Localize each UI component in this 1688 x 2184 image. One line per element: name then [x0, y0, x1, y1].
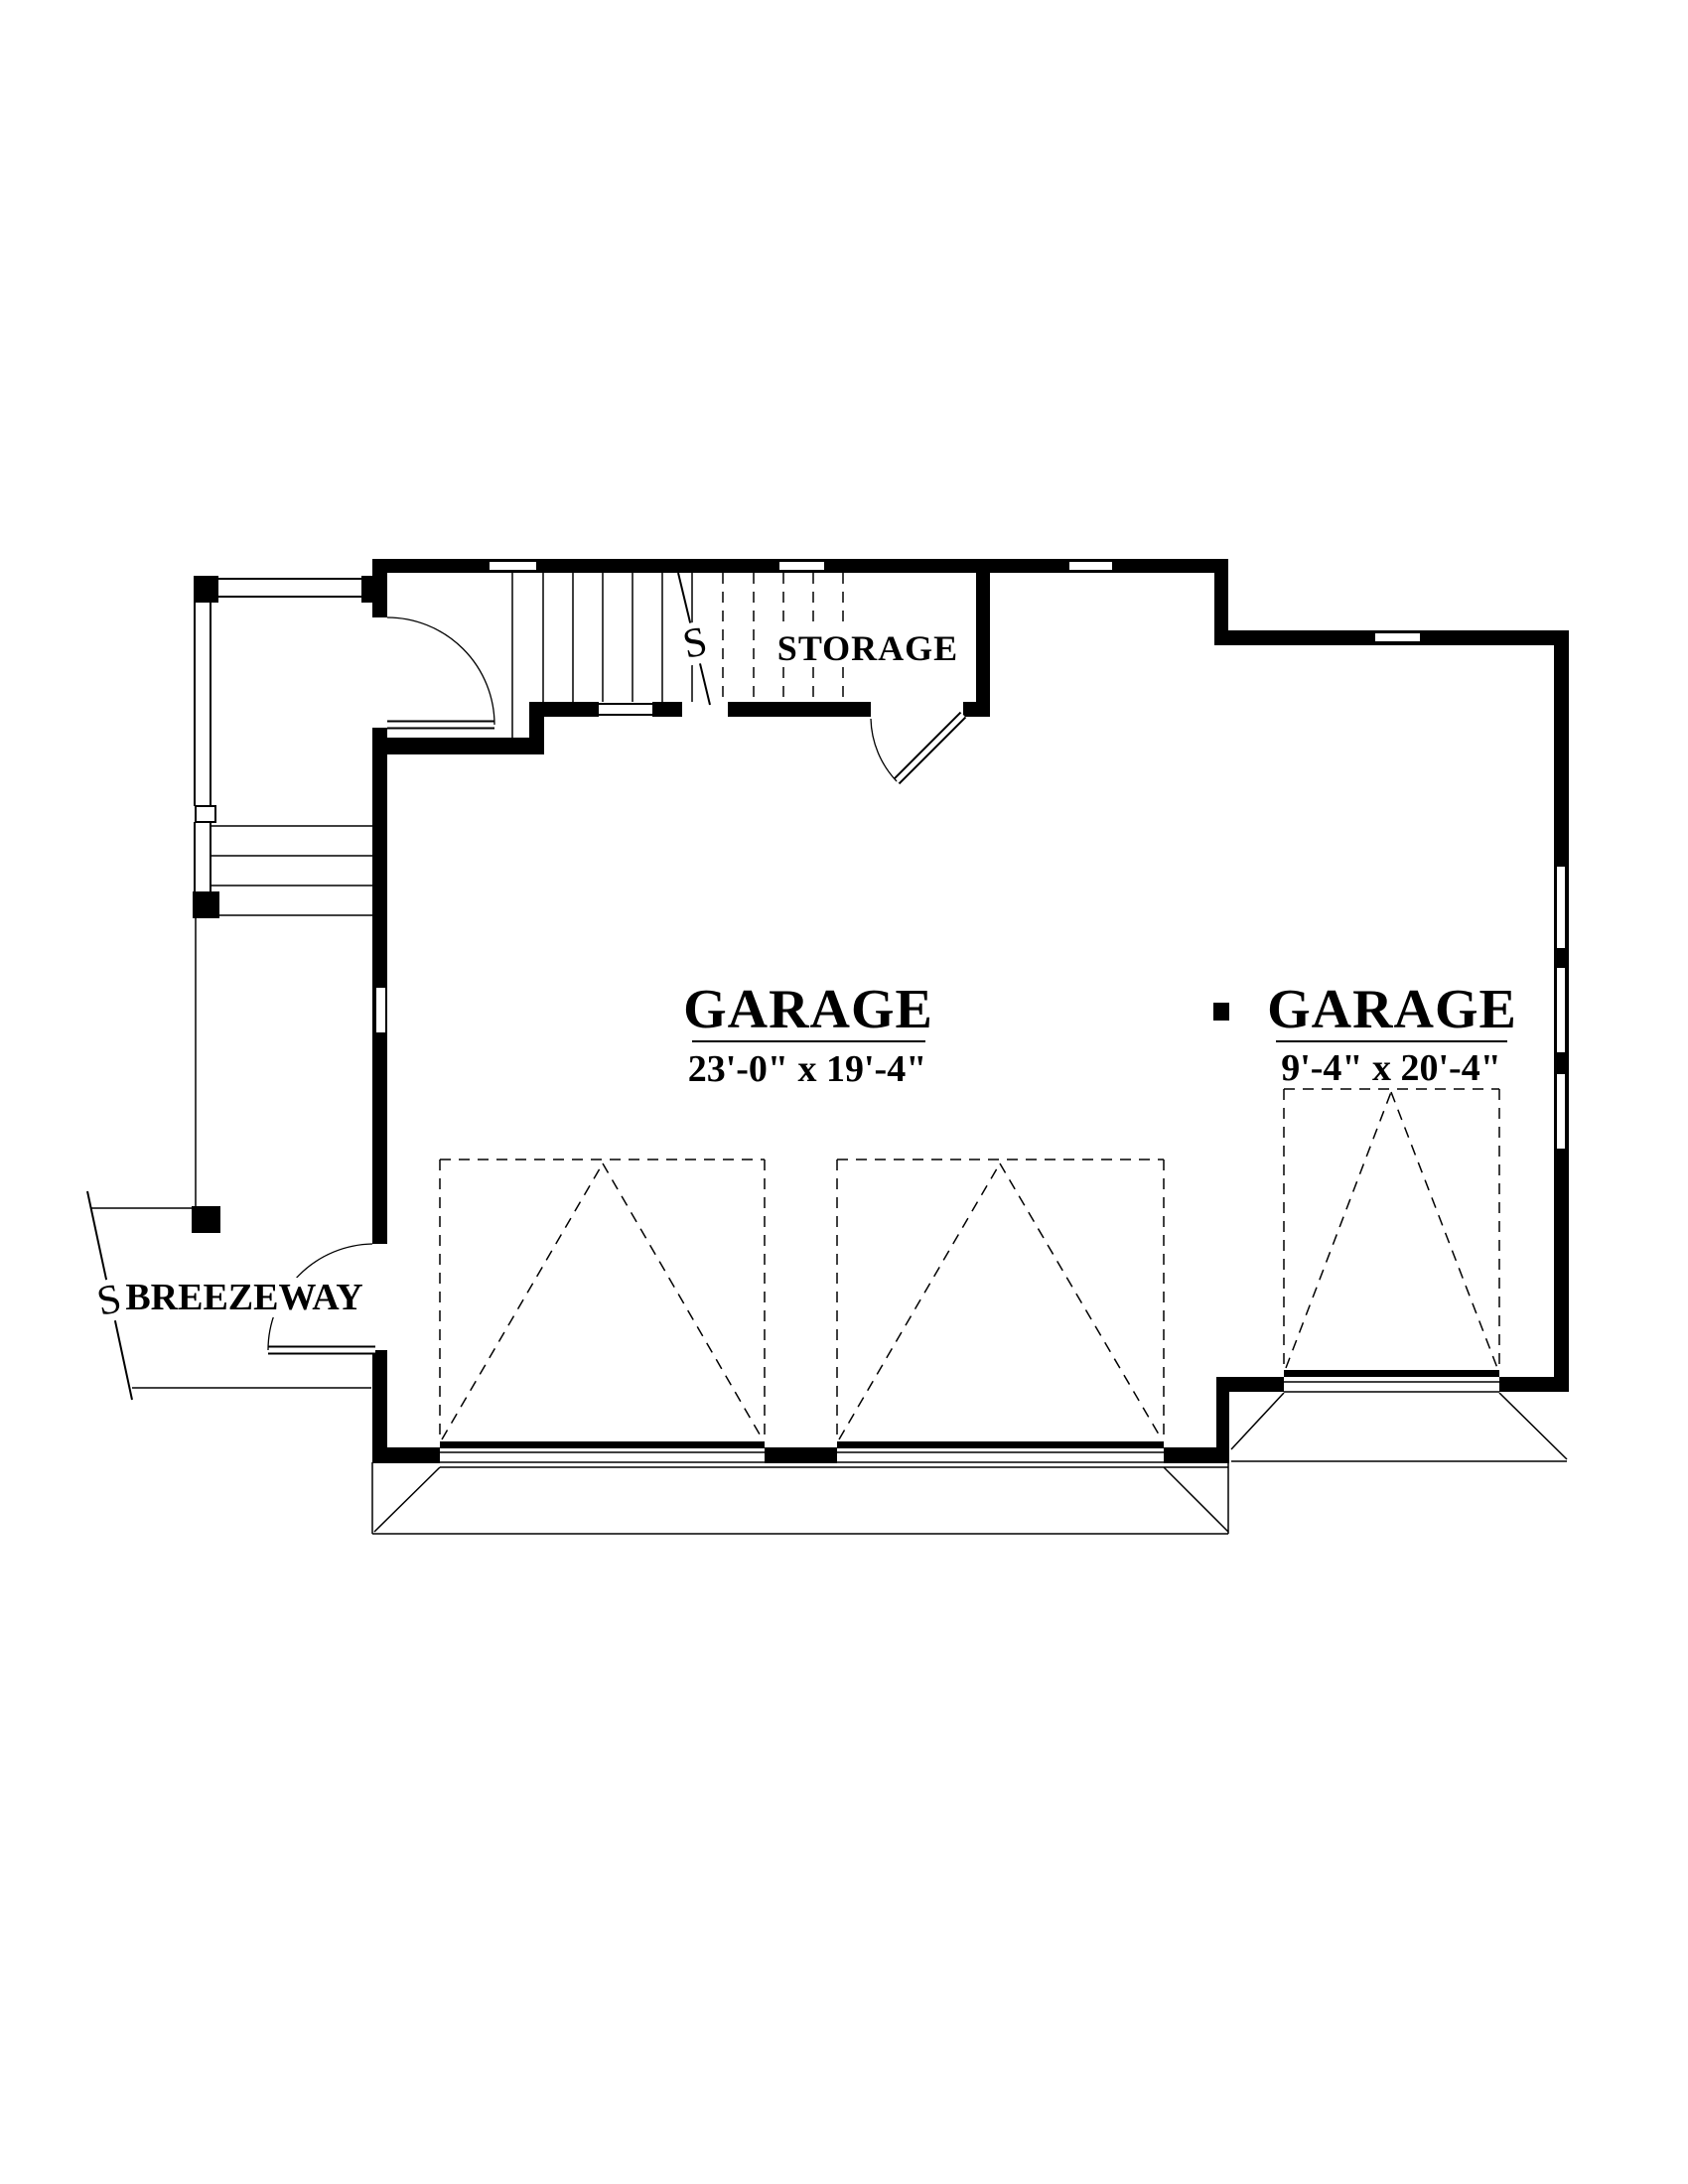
porch-beam-seat [361, 576, 372, 603]
apron-main-slant-right [1164, 1467, 1228, 1532]
window-right-2-edge-right [1565, 968, 1567, 1052]
wall-front-pier-c [1164, 1447, 1229, 1463]
door1-swing-left [442, 1163, 603, 1439]
garage-door1-sill [440, 1441, 765, 1448]
room-dims-garage-main: 23'-0" x 19'-4" [685, 1049, 930, 1089]
room-label-storage: STORAGE [774, 629, 961, 667]
window-top-3-edge-bottom [1069, 570, 1112, 572]
wall-front-pier-a [372, 1447, 440, 1463]
wall-left-mid [372, 728, 387, 1244]
window-top-2-edge-top [779, 560, 824, 562]
window-top-3-edge-top [1069, 560, 1112, 562]
floor-plan-page: STORAGE GARAGE 23'-0" x 19'-4" GARAGE 9'… [0, 0, 1688, 2184]
apron-main-slant-left [374, 1467, 440, 1532]
door2-swing-left [839, 1163, 1000, 1439]
window-right-1-edge-left [1555, 867, 1557, 948]
wall-storage-right [976, 573, 990, 717]
window-storage-wall-edge-bottom [599, 714, 652, 716]
window-storage-wall-edge-top [599, 703, 652, 705]
window-top-1-edge-top [490, 560, 536, 562]
column-marker [1213, 1003, 1229, 1021]
wall-step-top-right [1214, 559, 1228, 645]
window-right-1-edge-right [1565, 867, 1567, 948]
window-top-4-edge-top [1375, 631, 1420, 633]
garage-door3-sill [1284, 1370, 1499, 1377]
porch-rail-post [196, 806, 215, 822]
door-leaf-storage-core [897, 715, 963, 781]
window-top-1-edge-bottom [490, 570, 536, 572]
wall-landing-bottom [372, 738, 544, 754]
door1-swing-right [603, 1163, 763, 1439]
room-label-garage-main: GARAGE [680, 981, 936, 1038]
window-right-2-edge-left [1555, 968, 1557, 1052]
door3-swing-left [1286, 1092, 1391, 1368]
window-top-4-edge-bottom [1375, 641, 1420, 643]
room-dims-garage-right: 9'-4" x 20'-4" [1278, 1048, 1504, 1088]
window-top-2-edge-bottom [779, 570, 824, 572]
window-right-3-edge-left [1555, 1074, 1557, 1149]
door-swing-storage [871, 719, 897, 781]
room-label-garage-right: GARAGE [1264, 981, 1520, 1038]
wall-front-right-pier-right [1499, 1377, 1569, 1392]
wall-left-top [372, 559, 387, 617]
floor-plan-svg [0, 0, 1688, 2184]
apron-right-slant-right [1499, 1393, 1567, 1459]
wall-front-right-pier-left [1229, 1377, 1284, 1392]
window-left-wall-edge-right [385, 988, 387, 1032]
apron-right-slant-left [1231, 1393, 1284, 1449]
wall-left-bottom [372, 1350, 387, 1449]
door-swing-landing [387, 617, 494, 725]
door3-swing-right [1391, 1092, 1497, 1368]
window-left-wall-edge-left [374, 988, 376, 1032]
wall-storage-c [728, 702, 871, 717]
window-right-3-edge-right [1565, 1074, 1567, 1149]
wall-front-pier-b [765, 1447, 837, 1463]
door2-swing-right [1000, 1163, 1162, 1439]
wall-storage-b [652, 702, 682, 717]
garage-door2-sill [837, 1441, 1164, 1448]
porch-post-top [194, 576, 218, 603]
room-label-breezeway: BREEZEWAY [122, 1278, 365, 1317]
breezeway-post [192, 1206, 220, 1233]
porch-post-bottom [193, 891, 219, 918]
